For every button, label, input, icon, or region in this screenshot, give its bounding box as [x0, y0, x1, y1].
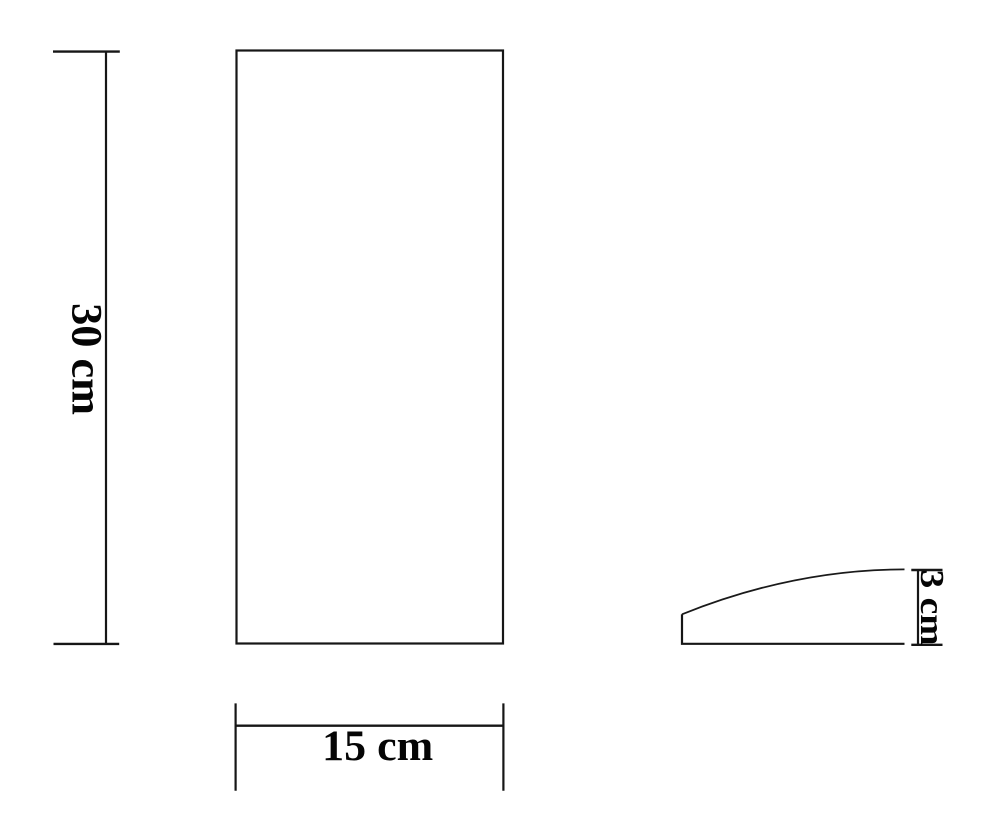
svg-text:30 cm: 30 cm [63, 303, 111, 415]
svg-text:15 cm: 15 cm [322, 722, 433, 770]
svg-text:3 cm: 3 cm [913, 570, 950, 646]
